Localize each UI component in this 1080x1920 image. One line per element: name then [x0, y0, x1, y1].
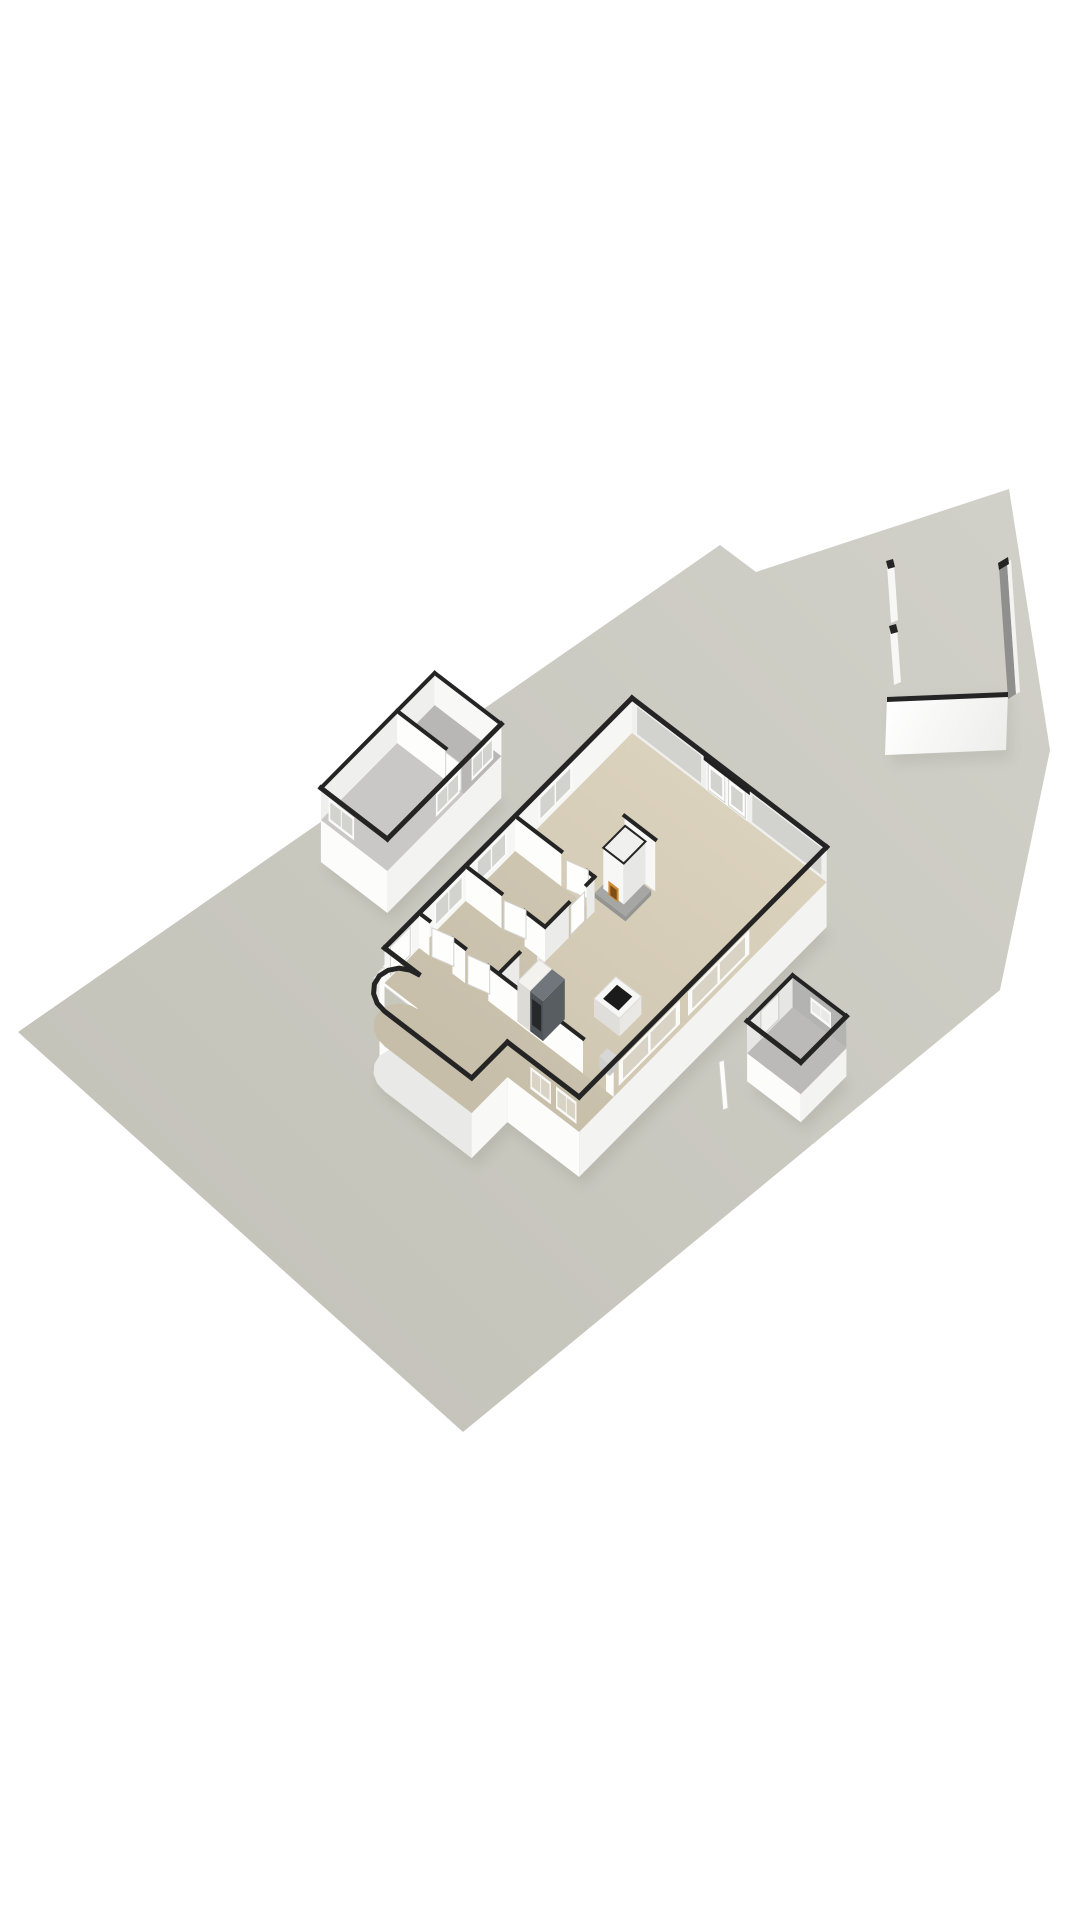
garden-wall-long	[885, 692, 1008, 755]
floorplan-viewport	[0, 0, 1080, 1920]
floorplan-3d-render	[0, 0, 1080, 1920]
